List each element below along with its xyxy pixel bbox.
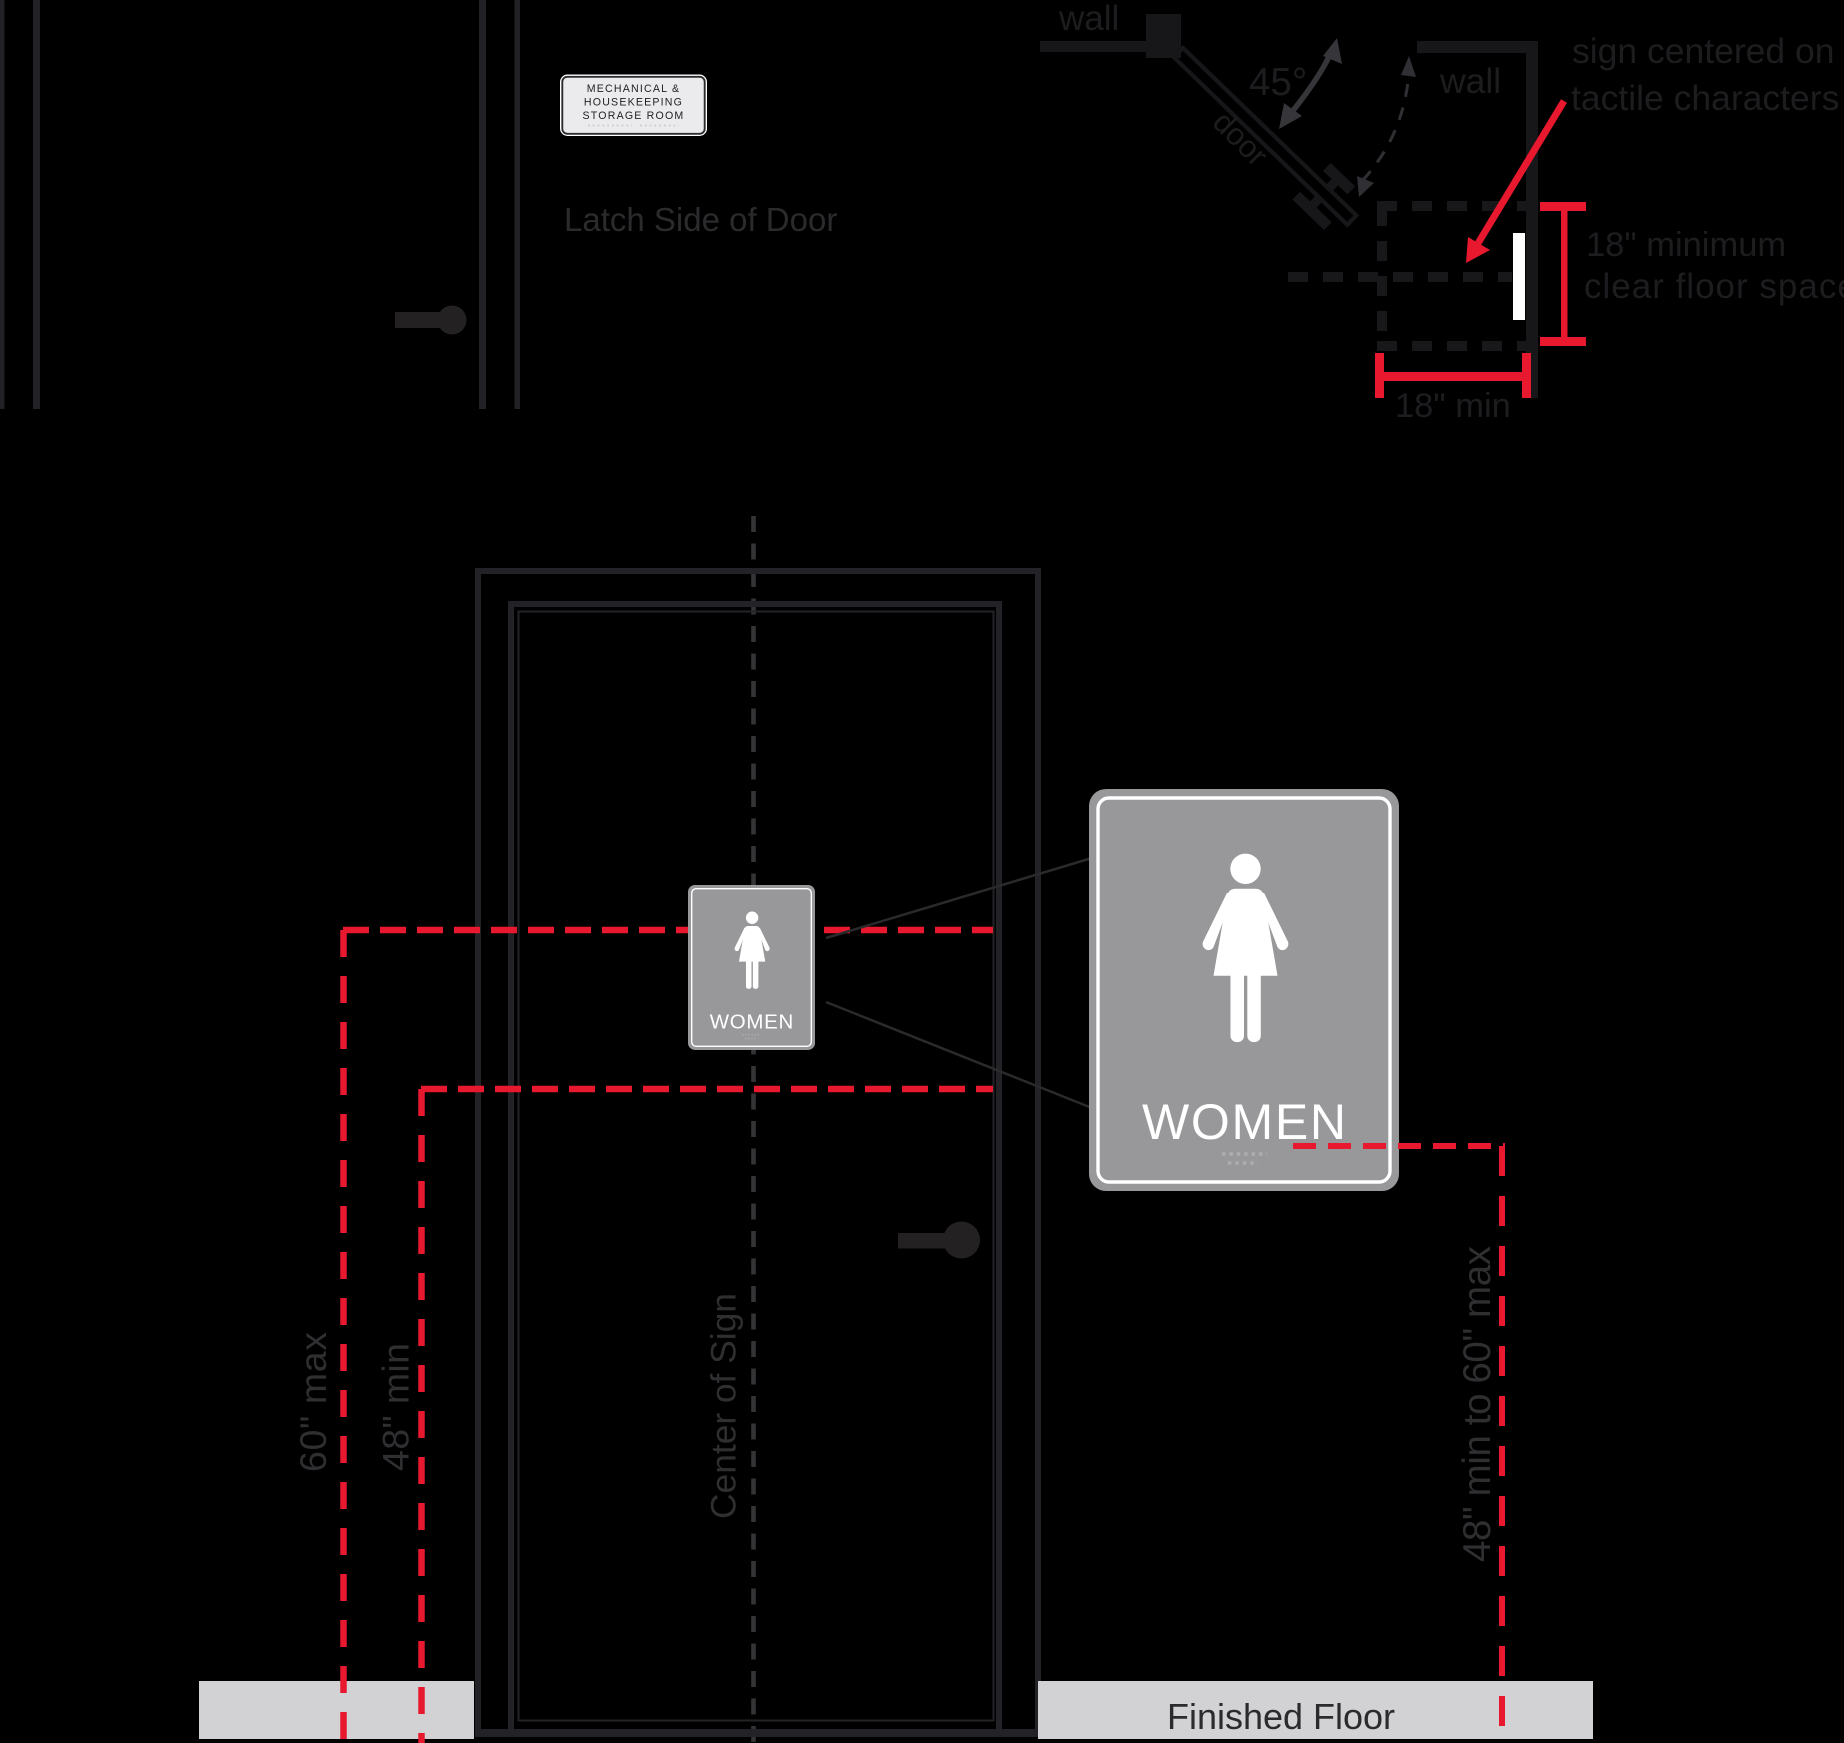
- svg-text:MECHANICAL &: MECHANICAL &: [587, 83, 680, 95]
- svg-text:sign centered on: sign centered on: [1572, 31, 1835, 71]
- svg-text:18" min: 18" min: [1395, 387, 1511, 425]
- svg-text:48" min: 48" min: [375, 1343, 417, 1471]
- svg-text:wall: wall: [1439, 61, 1501, 101]
- svg-text:clear floor space: clear floor space: [1584, 267, 1844, 306]
- svg-text:HOUSEKEEPING: HOUSEKEEPING: [584, 97, 683, 109]
- svg-text:door: door: [1206, 104, 1275, 173]
- svg-text:18" minimum: 18" minimum: [1586, 226, 1786, 264]
- svg-text:45°: 45°: [1249, 61, 1307, 104]
- svg-text:Center of Sign: Center of Sign: [704, 1293, 744, 1519]
- svg-text:STORAGE ROOM: STORAGE ROOM: [583, 110, 685, 122]
- svg-text:tactile characters: tactile characters: [1571, 78, 1839, 118]
- svg-text:Finished Floor: Finished Floor: [1167, 1696, 1395, 1737]
- svg-text:Latch Side of Door: Latch Side of Door: [564, 201, 837, 238]
- svg-text:60" max: 60" max: [292, 1332, 334, 1472]
- svg-text:48" min to 60" max: 48" min to 60" max: [1456, 1246, 1499, 1562]
- svg-text:wall: wall: [1058, 0, 1119, 38]
